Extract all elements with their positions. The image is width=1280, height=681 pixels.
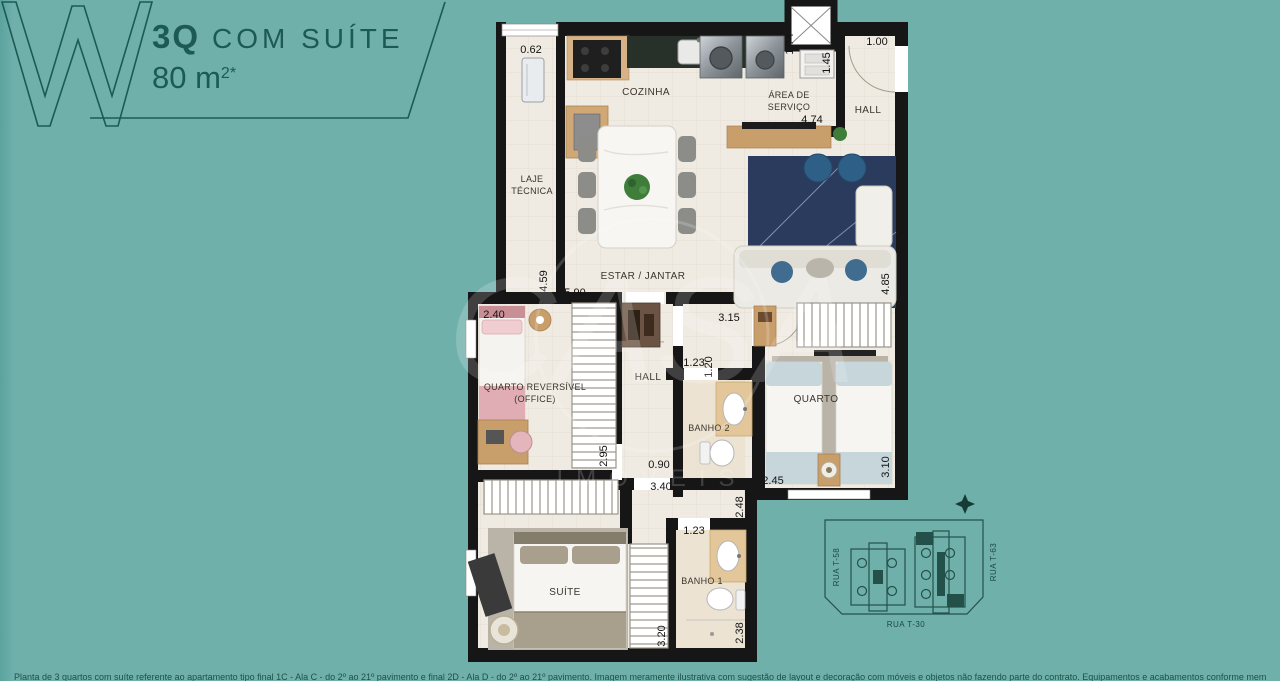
label-area-servico-2: SERVIÇO xyxy=(768,102,810,112)
site-plan: RUA T-58 RUA T-63 RUA T-30 xyxy=(825,494,998,629)
dim-banho1-largura: 1.23 xyxy=(683,525,704,537)
watermark-subtext: IMÓVEIS xyxy=(556,465,747,492)
dim-quarto-rev-altura: 2.95 xyxy=(598,445,610,466)
building-left xyxy=(851,543,905,611)
page: 3QCOM SUÍTE 80 m2* xyxy=(0,0,1280,681)
dim-suite-altura: 3.20 xyxy=(656,625,668,646)
tv-console xyxy=(727,122,847,148)
coffee-table xyxy=(856,186,892,248)
label-suite: SUÍTE xyxy=(549,585,580,598)
dim-laje-top: 0.62 xyxy=(520,44,541,56)
plant xyxy=(624,174,650,200)
dim-as-2: 1.45 xyxy=(821,52,833,73)
vanity-banho1 xyxy=(710,530,746,582)
ottoman xyxy=(490,616,518,644)
desk-reversible xyxy=(478,420,532,464)
dim-corredor: 2.48 xyxy=(734,496,746,517)
toilet-banho2 xyxy=(700,440,734,466)
laundry-machine xyxy=(746,36,784,78)
building-right xyxy=(915,531,965,613)
street-bottom: RUA T-30 xyxy=(887,620,926,629)
water-heater xyxy=(522,58,544,102)
watermark-text: CASA xyxy=(448,246,856,414)
street-right: RUA T-63 xyxy=(989,543,998,582)
label-area-servico-1: ÁREA DE xyxy=(768,90,809,100)
dim-quarto-largura: 2.45 xyxy=(762,475,783,487)
street-left: RUA T-58 xyxy=(832,548,841,587)
label-laje-1: LAJE xyxy=(521,174,544,184)
label-hall-entrada: HALL xyxy=(855,105,882,116)
north-star-icon xyxy=(955,494,975,514)
dim-banho1-altura: 2.38 xyxy=(734,622,746,643)
dim-estar-altura: 4.85 xyxy=(880,273,892,294)
dim-quarto-altura: 3.10 xyxy=(880,456,892,477)
disclaimer: Planta de 3 quartos com suíte referente … xyxy=(14,672,1266,681)
label-banho1: BANHO 1 xyxy=(681,576,723,586)
label-laje-2: TÉCNICA xyxy=(511,186,553,196)
nightstand xyxy=(818,454,840,486)
dim-entry: 1.00 xyxy=(866,36,887,48)
label-cozinha: COZINHA xyxy=(622,87,670,98)
dim-as-1: 1.74 xyxy=(784,33,796,54)
floor-plan: COZINHA ÁREA DE SERVIÇO HALL LAJE TÉCNIC… xyxy=(0,0,1280,681)
dim-area-servico: 4.74 xyxy=(801,114,822,126)
washer xyxy=(700,36,742,78)
stove xyxy=(573,40,621,78)
